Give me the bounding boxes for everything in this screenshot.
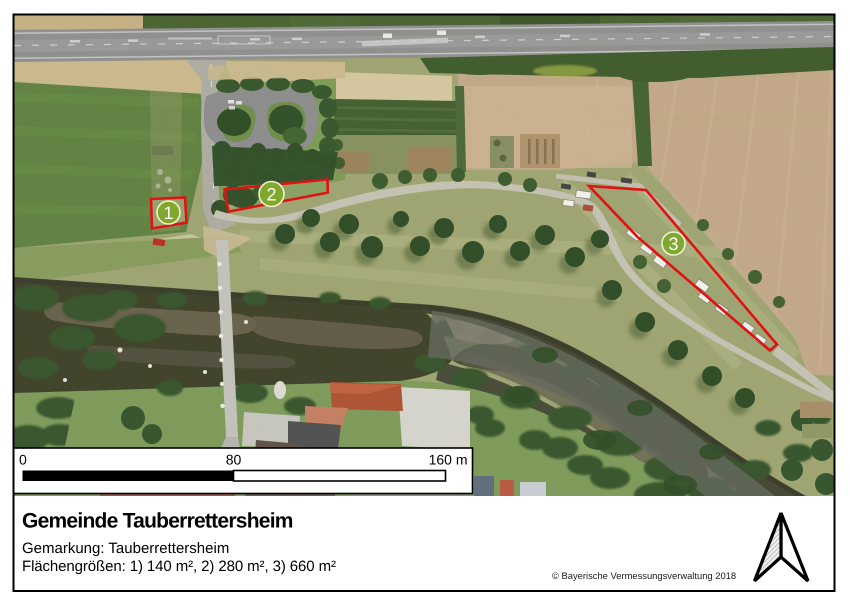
svg-text:© Bayerische Vermessungsverwal: © Bayerische Vermessungsverwaltung 2018 <box>552 570 736 581</box>
svg-text:160 m: 160 m <box>429 452 468 468</box>
svg-text:80: 80 <box>226 452 242 468</box>
svg-text:Gemarkung: Tauberrettersheim: Gemarkung: Tauberrettersheim <box>22 540 229 557</box>
svg-text:Gemeinde Tauberrettersheim: Gemeinde Tauberrettersheim <box>22 510 293 533</box>
svg-text:Flächengrößen: 1) 140 m², 2) 2: Flächengrößen: 1) 140 m², 2) 280 m², 3) … <box>22 558 336 575</box>
svg-text:2: 2 <box>266 185 276 205</box>
svg-text:0: 0 <box>19 452 27 468</box>
svg-text:1: 1 <box>163 203 173 223</box>
svg-text:3: 3 <box>668 234 678 254</box>
